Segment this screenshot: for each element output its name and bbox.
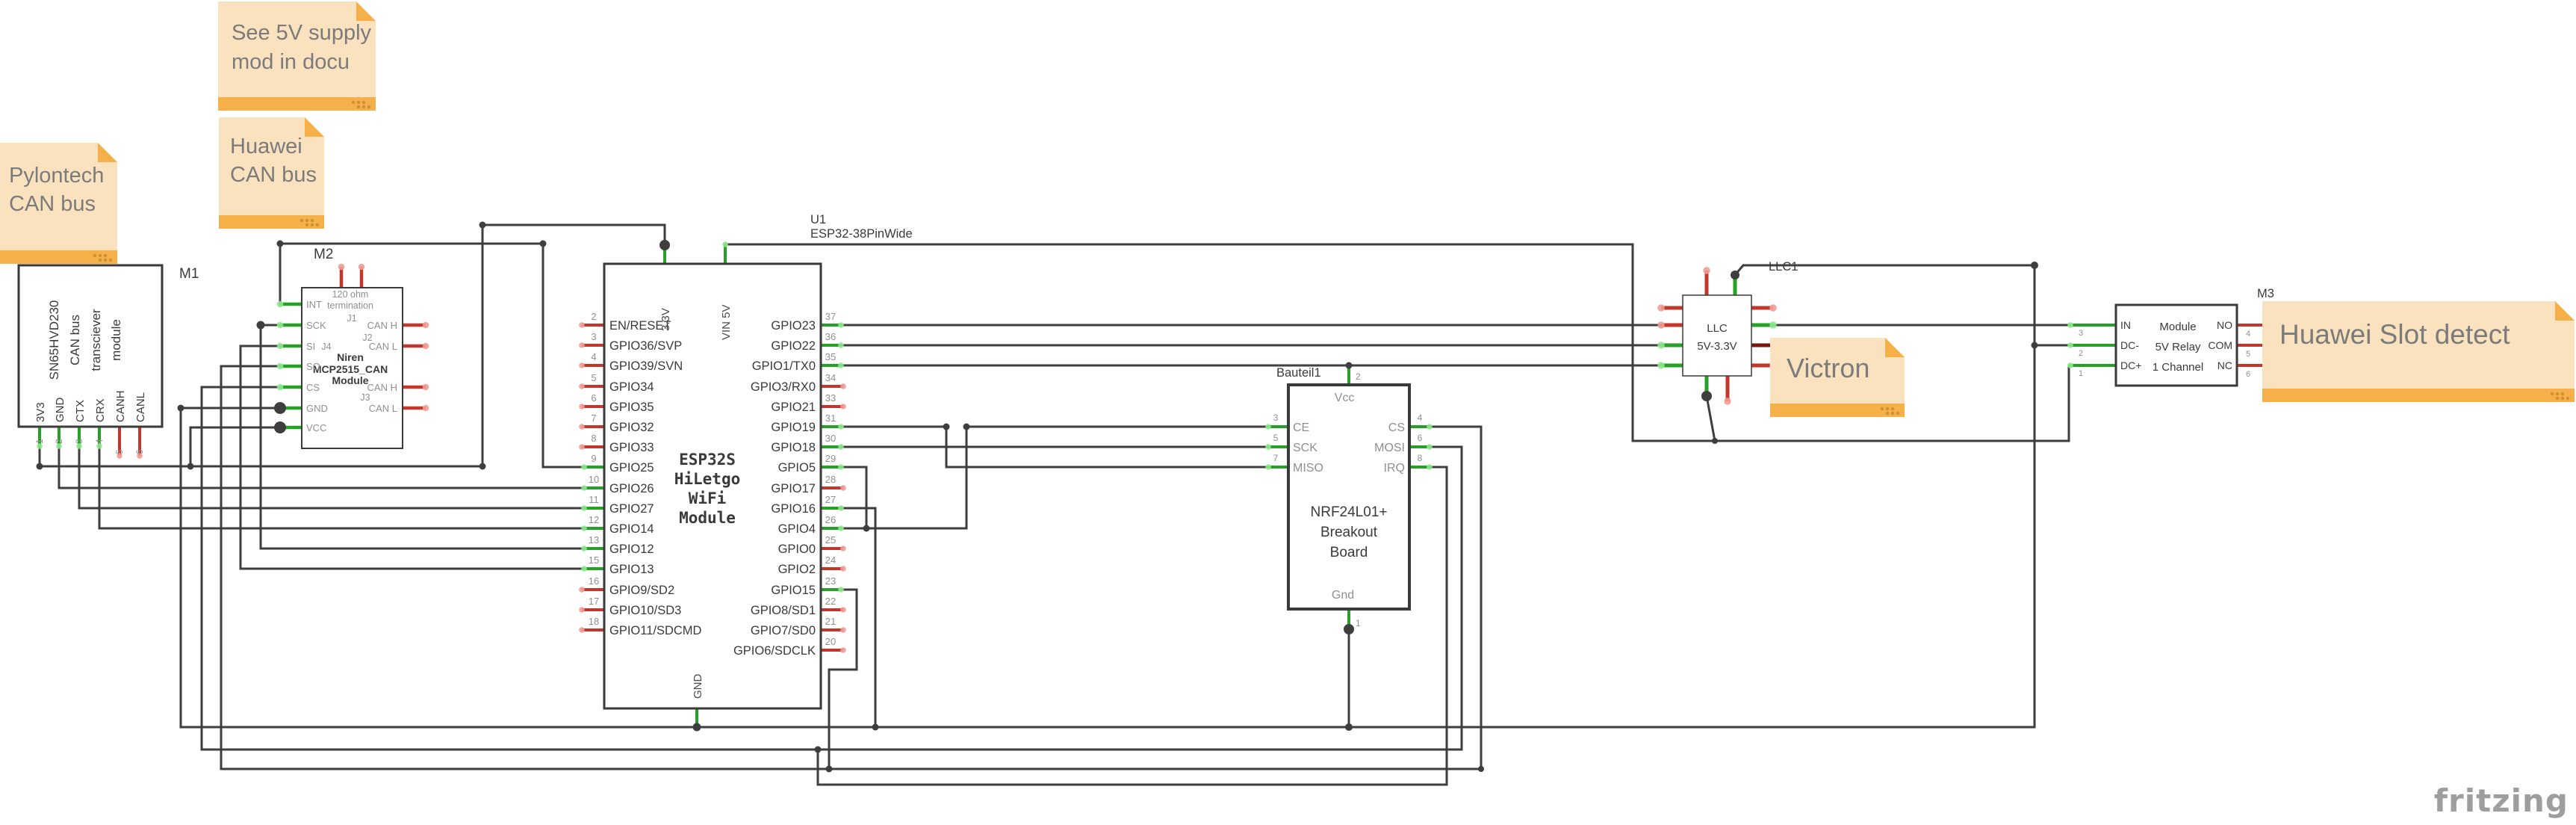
note-resize-grip-icon[interactable] xyxy=(316,223,319,226)
note-resize-grip-icon[interactable] xyxy=(1886,412,1889,415)
label: GPIO11/SDCMD xyxy=(609,624,702,637)
junction-dot xyxy=(1701,391,1712,401)
label: GPIO17 xyxy=(771,482,816,495)
label: J3 xyxy=(360,392,370,403)
label: COM xyxy=(2208,339,2232,351)
component-body[interactable] xyxy=(1288,385,1409,609)
label: VCC xyxy=(306,422,326,433)
label: 6 xyxy=(1418,433,1423,443)
pin-tip xyxy=(579,587,585,593)
schematic-canvas: M1SN65HVD230CAN bustranscievermodule3V3G… xyxy=(0,0,2576,825)
pin-tip xyxy=(579,404,585,410)
label: mod in docu xyxy=(232,50,350,74)
pin-tip xyxy=(1265,464,1271,470)
label: Huawei xyxy=(230,135,302,158)
label: GPIO5 xyxy=(778,461,816,475)
pin-tip xyxy=(838,362,844,368)
label: 15 xyxy=(589,554,599,566)
label: 2 xyxy=(54,439,64,444)
pin-tip xyxy=(840,566,846,572)
label: Module xyxy=(2159,321,2196,333)
label: WiFi xyxy=(689,489,727,507)
pin-tip xyxy=(579,444,585,450)
pin-tip xyxy=(840,485,846,491)
pin-tip xyxy=(838,464,844,470)
junction-dot xyxy=(1712,438,1718,444)
note-resize-grip-icon[interactable] xyxy=(362,101,365,104)
pin-tip xyxy=(579,607,585,613)
label: GND xyxy=(54,398,66,423)
pin-tip xyxy=(1657,304,1665,312)
pin-tip xyxy=(579,322,585,328)
junction-dot xyxy=(1346,362,1353,369)
label: 4 xyxy=(1418,412,1423,423)
pin-tip xyxy=(277,322,284,329)
pin-tip xyxy=(1657,342,1665,349)
note-pylontech-can-bus[interactable]: PylontechCAN bus xyxy=(0,143,117,264)
junction-dot xyxy=(178,405,184,412)
label: 1 xyxy=(1356,618,1361,628)
label: CAN bus xyxy=(230,163,317,187)
label: 27 xyxy=(825,494,836,505)
junction-dot xyxy=(815,747,822,753)
label: 30 xyxy=(825,433,836,444)
fritzing-watermark: fritzing xyxy=(2434,782,2569,819)
junction-dot xyxy=(257,321,265,330)
label: GPIO12 xyxy=(609,543,654,556)
pin-tip xyxy=(840,607,846,613)
label: 23 xyxy=(825,575,836,587)
label: 8 xyxy=(1418,453,1423,463)
label: termination xyxy=(327,300,373,311)
label: GPIO18 xyxy=(771,441,816,454)
label: CRX xyxy=(94,398,107,422)
pin-tip xyxy=(840,383,846,389)
label: 5 xyxy=(114,449,125,454)
note-resize-grip-icon[interactable] xyxy=(357,105,360,108)
note-bar[interactable] xyxy=(1770,404,1905,417)
label: CAN H xyxy=(367,320,397,331)
note-resize-grip-icon[interactable] xyxy=(104,254,107,257)
label: Gnd xyxy=(1332,589,1354,602)
note-resize-grip-icon[interactable] xyxy=(2556,397,2559,400)
junction-dot xyxy=(1731,271,1739,279)
label: Pylontech xyxy=(9,164,104,188)
label: CANH xyxy=(114,390,127,422)
label: GPIO3/RX0 xyxy=(751,380,816,394)
pin-tip xyxy=(277,301,284,308)
label: EN/RESET xyxy=(609,319,671,333)
label: 16 xyxy=(589,575,599,587)
junction-dot xyxy=(1478,766,1484,772)
label: 1 xyxy=(2079,369,2083,378)
pin-tip xyxy=(581,485,587,491)
label: GPIO6/SDCLK xyxy=(733,644,816,658)
label: 3 xyxy=(74,439,84,444)
note-resize-grip-icon[interactable] xyxy=(1886,407,1889,410)
pin-tip xyxy=(1265,444,1271,450)
label: Huawei Slot detect xyxy=(2279,319,2510,350)
label: Niren xyxy=(337,351,364,363)
label: 26 xyxy=(825,514,836,525)
label: 10 xyxy=(589,474,599,485)
junction-dot xyxy=(540,241,547,247)
label: U1 xyxy=(810,213,826,226)
note-bar[interactable] xyxy=(218,97,376,111)
note-resize-grip-icon[interactable] xyxy=(1881,407,1884,410)
pin-tip xyxy=(1769,321,1777,329)
note-resize-grip-icon[interactable] xyxy=(362,105,365,108)
label: GPIO21 xyxy=(771,401,816,414)
junction-dot xyxy=(274,421,286,433)
label: Victron xyxy=(1787,353,1869,383)
note-resize-grip-icon[interactable] xyxy=(1896,412,1899,415)
pin-tip xyxy=(1657,321,1665,329)
pin-tip xyxy=(838,444,844,450)
label: GPIO39/SVN xyxy=(609,359,683,373)
label: SI xyxy=(306,341,315,352)
label: J4 xyxy=(321,342,331,352)
label: GPIO32 xyxy=(609,421,654,434)
label: SN65HVD230 xyxy=(47,300,61,380)
note-victron[interactable]: Victron xyxy=(1770,338,1905,417)
label: 7 xyxy=(591,412,596,424)
label: GPIO9/SD2 xyxy=(609,584,674,597)
note-resize-grip-icon[interactable] xyxy=(99,254,102,257)
label: Bauteil1 xyxy=(1276,366,1321,380)
label: GPIO33 xyxy=(609,441,654,454)
note-resize-grip-icon[interactable] xyxy=(305,223,308,226)
note-see-5v-supply[interactable]: See 5V supplymod in docu xyxy=(218,1,376,111)
label: IRQ xyxy=(1384,462,1405,475)
junction-dot xyxy=(872,724,879,731)
note-resize-grip-icon[interactable] xyxy=(104,259,107,262)
label: 3 xyxy=(1273,412,1279,423)
label: 36 xyxy=(825,331,836,342)
junction-dot xyxy=(274,402,286,414)
label: 33 xyxy=(825,392,836,404)
note-huawei-can-bus[interactable]: HuaweiCAN bus xyxy=(219,117,324,229)
label: 12 xyxy=(589,514,599,525)
label: GPIO2 xyxy=(778,563,816,576)
note-resize-grip-icon[interactable] xyxy=(109,259,112,262)
pin-tip xyxy=(840,627,846,633)
label: M2 xyxy=(314,247,333,262)
pin-tip xyxy=(840,546,846,551)
label: M3 xyxy=(2257,287,2274,300)
label: 6 xyxy=(591,392,596,404)
label: GPIO19 xyxy=(771,421,816,434)
pin-tip xyxy=(338,264,345,271)
note-resize-grip-icon[interactable] xyxy=(99,259,102,262)
junction-dot xyxy=(479,222,486,229)
label: MISO xyxy=(1293,462,1323,475)
label: 28 xyxy=(825,474,836,485)
label: 34 xyxy=(825,372,836,383)
label: 37 xyxy=(825,311,836,322)
label: 2 xyxy=(2079,349,2083,358)
note-resize-grip-icon[interactable] xyxy=(305,219,308,222)
pin-tip xyxy=(423,343,429,350)
note-resize-grip-icon[interactable] xyxy=(93,254,96,257)
pin-tip xyxy=(423,384,429,391)
label: GPIO22 xyxy=(771,339,816,353)
junction-dot xyxy=(479,463,486,470)
label: GND xyxy=(692,674,704,699)
label: GPIO7/SD0 xyxy=(751,624,816,637)
pin-tip xyxy=(840,404,846,410)
pin-tip xyxy=(840,647,846,653)
pin-tip xyxy=(1724,398,1731,405)
pin-tip xyxy=(838,342,844,348)
pin-tip xyxy=(423,322,429,329)
label: CS xyxy=(1388,421,1405,434)
label: 5V-3.3V xyxy=(1697,340,1737,353)
label: 22 xyxy=(825,596,836,607)
pin-tip xyxy=(579,627,585,633)
label: GPIO15 xyxy=(771,584,816,597)
note-huawei-slot-detect[interactable]: Huawei Slot detect xyxy=(2262,301,2575,402)
label: Module xyxy=(332,374,369,386)
component-bauteil1-nrf24l01[interactable]: Bauteil121357468VccGndCESCKMISOCSMOSIIRQ… xyxy=(1265,362,1433,629)
label: SCK xyxy=(1293,442,1318,454)
label: 17 xyxy=(589,596,599,607)
note-resize-grip-icon[interactable] xyxy=(367,105,370,108)
label: CAN L xyxy=(369,341,397,352)
pin-tip xyxy=(581,566,587,572)
label: HiLetgo xyxy=(674,470,741,488)
junction-dot xyxy=(277,241,284,247)
label: DC- xyxy=(2120,339,2139,351)
label: 5 xyxy=(591,372,596,383)
label: GPIO26 xyxy=(609,482,654,495)
label: NRF24L01+ xyxy=(1311,504,1388,520)
note-resize-grip-icon[interactable] xyxy=(352,101,355,104)
label: 3V3 xyxy=(34,402,47,422)
label: 11 xyxy=(589,494,599,505)
label: 3 xyxy=(591,331,596,342)
label: GPIO14 xyxy=(609,522,654,536)
label: 25 xyxy=(825,534,836,546)
label: Vcc xyxy=(1335,392,1355,404)
label: CS xyxy=(306,382,320,393)
junction-dot xyxy=(37,463,43,470)
label: CE xyxy=(1293,421,1309,434)
label: 13 xyxy=(589,534,599,546)
label: GPIO4 xyxy=(778,522,816,536)
label: GPIO13 xyxy=(609,563,654,576)
pin-tip xyxy=(1265,424,1271,430)
label: CTX xyxy=(74,400,87,422)
pin-tip xyxy=(1769,304,1777,312)
label: 35 xyxy=(825,351,836,362)
pin-tip xyxy=(581,505,587,511)
pin-tip xyxy=(722,241,728,247)
pin-tip xyxy=(423,405,429,412)
junction-dot xyxy=(943,424,950,430)
junction-dot xyxy=(1345,723,1353,731)
label: ESP32-38PinWide xyxy=(810,227,913,241)
pin-tip xyxy=(277,384,284,391)
note-bar[interactable] xyxy=(219,215,324,229)
label: 2 xyxy=(1356,371,1361,382)
junction-dot xyxy=(826,766,833,773)
pin-tip xyxy=(2067,362,2073,368)
junction-dot xyxy=(2031,262,2038,269)
note-resize-grip-icon[interactable] xyxy=(2561,397,2564,400)
label: 20 xyxy=(825,636,836,647)
pin-tip xyxy=(579,342,585,348)
label: LLC1 xyxy=(1769,260,1798,274)
label: SCK xyxy=(306,320,326,331)
note-resize-grip-icon[interactable] xyxy=(2551,392,2554,395)
label: 5V Relay xyxy=(2156,341,2201,353)
label: 31 xyxy=(825,412,836,424)
label: GPIO36/SVP xyxy=(609,339,682,353)
pin-tip xyxy=(838,424,844,430)
label: SO xyxy=(306,361,320,372)
label: 6 xyxy=(2246,370,2250,379)
label: 8 xyxy=(591,433,596,444)
pin-tip xyxy=(277,363,284,370)
label: 7 xyxy=(1273,453,1279,463)
label: DC+ xyxy=(2120,359,2141,371)
label: MOSI xyxy=(1374,442,1405,454)
label: M1 xyxy=(179,266,199,282)
label: 3 xyxy=(2079,329,2083,338)
pin-tip xyxy=(1657,362,1665,369)
junction-dot xyxy=(963,424,970,430)
note-resize-grip-icon[interactable] xyxy=(2566,397,2569,400)
note-resize-grip-icon[interactable] xyxy=(2556,392,2559,395)
label: GPIO35 xyxy=(609,401,654,414)
label: 1 xyxy=(34,439,45,444)
note-resize-grip-icon[interactable] xyxy=(357,101,360,104)
note-resize-grip-icon[interactable] xyxy=(300,219,303,222)
label: 24 xyxy=(825,554,836,566)
note-bar[interactable] xyxy=(2262,389,2575,402)
label: 4 xyxy=(591,351,596,362)
label: GPIO34 xyxy=(609,380,654,394)
label: 21 xyxy=(825,616,836,627)
pin-tip xyxy=(277,343,284,350)
note-body[interactable] xyxy=(2262,301,2575,402)
junction-dot xyxy=(2032,342,2038,349)
label: INT xyxy=(306,299,322,310)
label: CAN bus xyxy=(68,315,82,365)
pin-tip xyxy=(579,424,585,430)
label: Module xyxy=(679,509,736,527)
pin-tip xyxy=(838,322,844,328)
pin-tip xyxy=(581,525,587,531)
label: ESP32S xyxy=(679,451,736,469)
label: CAN H xyxy=(367,382,397,393)
label: 120 ohm xyxy=(332,289,369,300)
label: 6 xyxy=(134,449,145,454)
label: GPIO8/SD1 xyxy=(751,604,816,617)
junction-dot xyxy=(187,463,194,470)
label: Board xyxy=(1330,545,1368,560)
label: IN xyxy=(2120,319,2131,331)
label: 29 xyxy=(825,453,836,464)
label: CAN bus xyxy=(9,192,96,216)
label: 5 xyxy=(1273,433,1279,443)
label: 18 xyxy=(589,616,599,627)
label: 5 xyxy=(2246,350,2250,359)
label: transciever xyxy=(89,309,103,371)
label: 1 Channel xyxy=(2153,361,2203,374)
pin-tip xyxy=(2067,322,2073,328)
label: NC xyxy=(2217,359,2232,371)
note-resize-grip-icon[interactable] xyxy=(311,223,314,226)
label: module xyxy=(109,319,123,361)
label: MCP2515_CAN xyxy=(313,363,388,375)
label: GPIO10/SD3 xyxy=(609,604,681,617)
label: 4 xyxy=(2246,330,2250,339)
pin-tip xyxy=(838,525,844,531)
pin-tip xyxy=(1703,267,1710,274)
label: GPIO16 xyxy=(771,502,816,516)
pin-tip xyxy=(581,546,587,551)
note-resize-grip-icon[interactable] xyxy=(1891,412,1894,415)
pin-tip xyxy=(838,505,844,511)
label: GPIO23 xyxy=(771,319,816,333)
label: NO xyxy=(2217,319,2232,331)
label: GPIO27 xyxy=(609,502,654,516)
pin-tip xyxy=(1427,444,1433,450)
junction-dot xyxy=(863,525,870,532)
label: LLC xyxy=(1707,322,1728,335)
label: CANL xyxy=(134,392,147,422)
label: Breakout xyxy=(1320,525,1378,540)
junction-dot xyxy=(693,723,701,732)
label: 9 xyxy=(591,453,596,464)
pin-tip xyxy=(579,362,585,368)
pin-tip xyxy=(581,464,587,470)
label: GPIO25 xyxy=(609,461,654,475)
label: GPIO0 xyxy=(778,543,816,556)
label: GPIO1/TX0 xyxy=(752,359,816,373)
label: GND xyxy=(306,403,328,414)
pin-tip xyxy=(2067,342,2073,348)
pin-tip xyxy=(579,383,585,389)
note-resize-grip-icon[interactable] xyxy=(1891,407,1894,410)
label: J1 xyxy=(347,313,356,324)
junction-dot xyxy=(1344,624,1354,634)
label: VIN 5V xyxy=(720,304,733,340)
label: 2 xyxy=(591,311,596,322)
pin-tip xyxy=(1427,424,1433,430)
component-body[interactable] xyxy=(1683,295,1751,376)
note-resize-grip-icon[interactable] xyxy=(2561,392,2564,395)
junction-dot xyxy=(659,240,670,250)
note-resize-grip-icon[interactable] xyxy=(311,219,314,222)
label: See 5V supply xyxy=(232,21,372,45)
pin-tip xyxy=(838,587,844,593)
label: CAN L xyxy=(369,403,397,414)
label: 4 xyxy=(94,439,105,444)
pin-tip xyxy=(359,264,365,271)
pin-tip xyxy=(1427,464,1433,470)
